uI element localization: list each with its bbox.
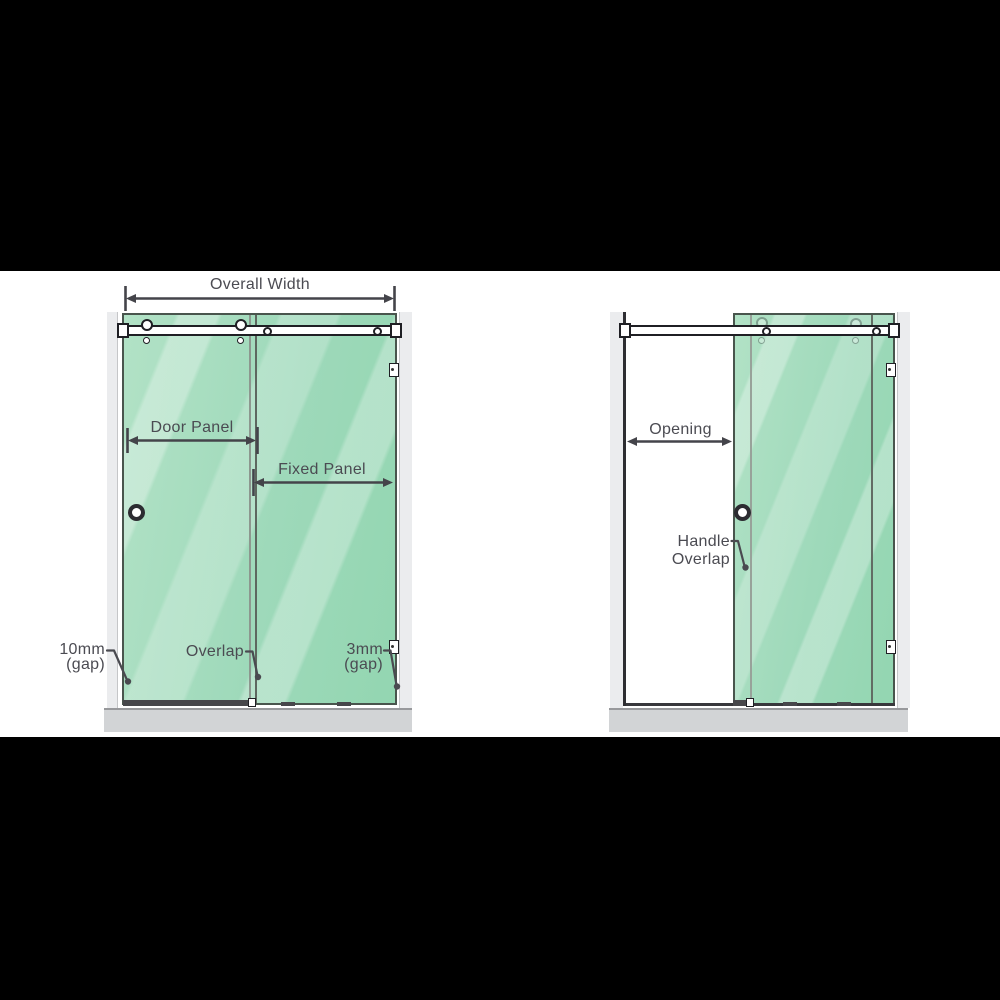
panel-bottom-clip: [837, 702, 851, 706]
bottom-track-line: [626, 703, 895, 706]
rail-fixing-icon: [872, 327, 881, 336]
gap-3mm-value: 3mm: [329, 642, 383, 657]
bottom-guide-block-icon: [248, 698, 256, 707]
panel-bottom-clip: [281, 702, 295, 706]
handle-overlap-label: Handle Overlap: [646, 533, 730, 569]
panel-bottom-clip: [783, 702, 797, 706]
wall-clamp-icon: [886, 363, 896, 377]
rail-bracket-left-icon: [117, 323, 129, 338]
fixed-panel-label: Fixed Panel: [251, 461, 393, 478]
roller-stopper-icon: [237, 337, 244, 344]
door-bottom-guide: [123, 700, 254, 706]
overall-width-label: Overall Width: [125, 276, 395, 293]
wall-clamp-icon: [886, 640, 896, 654]
rail-bracket-left-icon: [619, 323, 631, 338]
rail-bracket-right-icon: [888, 323, 900, 338]
overlap-label: Overlap: [166, 643, 244, 660]
roller-stopper-icon: [143, 337, 150, 344]
panel-bottom-clip: [337, 702, 351, 706]
gap-10mm-label: 10mm (gap): [56, 642, 105, 672]
top-rail: [626, 325, 894, 336]
bottom-guide-block-icon: [746, 698, 754, 707]
door-panel-edge-line: [871, 315, 873, 703]
wall-left: [107, 312, 118, 708]
fixed-panel-edge-line: [249, 315, 251, 703]
wall-left: [610, 312, 623, 708]
wall-clamp-icon: [389, 363, 399, 377]
shower-tray: [104, 708, 412, 732]
gap-10mm-unit: (gap): [56, 657, 105, 672]
roller-stopper-behind-glass-icon: [758, 337, 765, 344]
shower-screen-diagram: Overall Width Door Panel Fixed Panel Ove…: [0, 0, 1000, 1000]
handle-overlap-line1: Handle: [646, 533, 730, 551]
door-panel-edge-line: [255, 315, 257, 703]
rail-fixing-icon: [263, 327, 272, 336]
shower-tray: [609, 708, 908, 732]
top-rail: [124, 325, 396, 336]
rail-fixing-icon: [762, 327, 771, 336]
door-knob-icon: [734, 504, 751, 521]
roller-icon: [235, 319, 247, 331]
wall-clamp-icon: [389, 640, 399, 654]
wall-right: [897, 312, 910, 708]
opening-label: Opening: [629, 421, 732, 438]
rail-fixing-icon: [373, 327, 382, 336]
door-knob-icon: [128, 504, 145, 521]
wall-jamb-line: [623, 312, 626, 706]
gap-10mm-value: 10mm: [56, 642, 105, 657]
gap-3mm-label: 3mm (gap): [329, 642, 383, 672]
door-panel-label: Door Panel: [127, 419, 257, 436]
handle-overlap-line2: Overlap: [646, 551, 730, 569]
roller-stopper-behind-glass-icon: [852, 337, 859, 344]
wall-right: [399, 312, 412, 708]
roller-icon: [141, 319, 153, 331]
rail-bracket-right-icon: [390, 323, 402, 338]
gap-3mm-unit: (gap): [329, 657, 383, 672]
